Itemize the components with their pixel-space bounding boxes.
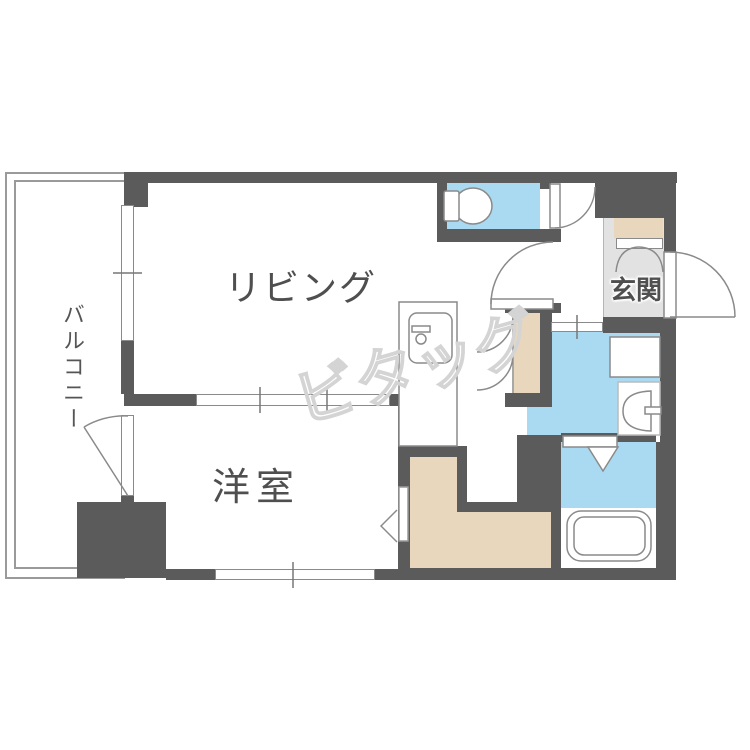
entrance-door bbox=[664, 252, 735, 318]
living-door bbox=[491, 242, 553, 309]
floor-plan: ビタッグ リビング 洋室 玄関 バルコニー bbox=[0, 0, 750, 750]
entrance-label: 玄関 bbox=[610, 270, 662, 307]
western-room-door bbox=[381, 487, 408, 542]
bathroom-door bbox=[563, 436, 618, 471]
bathtub-icon bbox=[567, 511, 651, 561]
living-room-label: リビング bbox=[225, 259, 377, 311]
western-room-label: 洋室 bbox=[212, 456, 300, 511]
balcony-window-swing bbox=[84, 416, 128, 496]
toilet-door bbox=[550, 184, 595, 228]
washing-machine-icon bbox=[610, 337, 660, 377]
balcony-label: バルコニー bbox=[56, 303, 88, 463]
washbasin-icon bbox=[618, 382, 661, 435]
entrance-arch bbox=[616, 247, 663, 272]
fixture-overlay: ビタッグ bbox=[0, 0, 750, 750]
toilet-icon bbox=[444, 188, 492, 224]
